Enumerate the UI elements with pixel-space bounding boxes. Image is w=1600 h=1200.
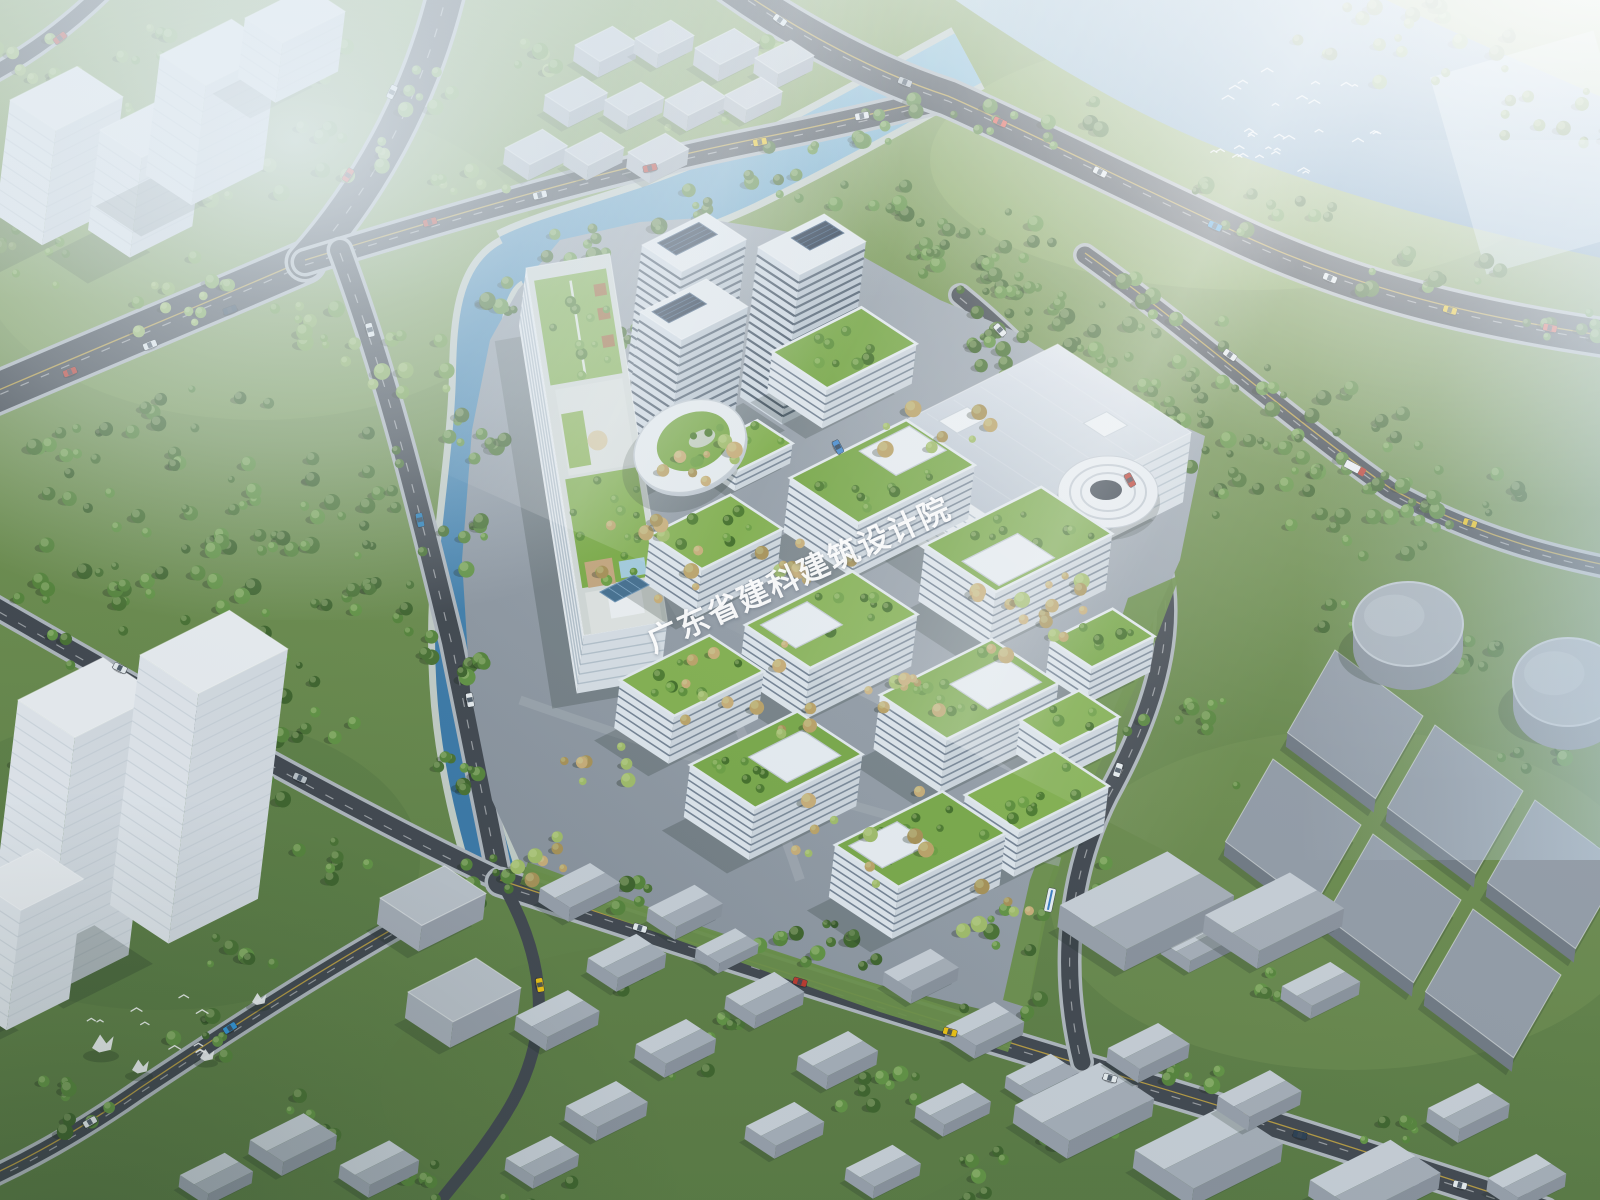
- aerial-architectural-rendering: 广东省建科建筑设计院: [0, 0, 1600, 1200]
- scene-canvas: [0, 0, 1600, 1200]
